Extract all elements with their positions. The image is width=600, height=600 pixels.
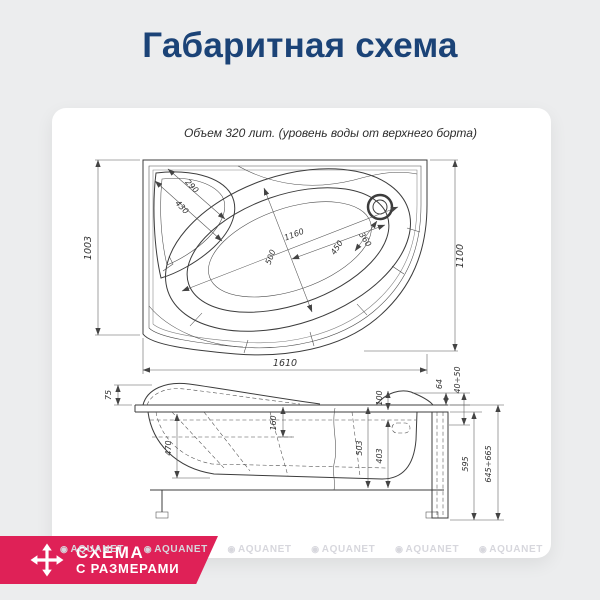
dim-label-403: 403 [375,448,384,463]
apron-hidden [437,412,443,518]
ext-lines-1100 [364,160,458,351]
dim-label-595: 595 [461,456,470,471]
dim-label-1100: 1100 [455,244,466,268]
page-title: Габаритная схема [0,26,600,66]
apron-panel [432,412,448,518]
bowl-outline [148,412,417,479]
dim-label-64: 64 [435,379,444,389]
dim-label-1160: 1160 [283,227,305,243]
dim-label-160: 160 [269,415,278,430]
badge-line2: С РАЗМЕРАМИ [76,562,179,577]
bowl-hidden-diagonals [172,412,360,476]
dim-label-430: 430 [173,199,190,216]
dim-label-645-665: 645÷665 [484,445,493,482]
move-arrows-icon [30,543,64,577]
dim-label-1003: 1003 [83,236,94,260]
dim-label-40-50: 40÷50 [453,366,462,393]
ext-lines-75 [114,385,152,405]
dim-label-500: 500 [264,248,278,265]
rim-band [135,405,448,412]
tub-outer-shell [143,160,427,355]
dim-line-1160 [182,207,398,291]
pump-detail [392,423,410,433]
foot-left [156,512,168,518]
rim-spokes [190,228,420,353]
top-view: 1003 1100 1610 290 430 1160 500 450 360 [83,139,466,374]
dim-label-503: 503 [355,440,364,455]
dim-label-290: 290 [183,178,200,195]
dim-label-450: 450 [329,239,345,257]
headrest-hump [143,383,320,405]
side-view: 75 470 160 503 403 100 64 40÷50 [104,366,504,520]
badge-line1: СХЕМА [76,543,179,563]
technical-drawing: .ln{fill:none;stroke:#3c3c3c;stroke-widt… [52,108,551,558]
seat-fold [163,256,173,271]
ext-lines-595 [450,412,504,520]
ext-lines-1003 [95,160,140,335]
dim-line-290 [168,169,225,219]
dim-label-100: 100 [375,390,384,405]
dim-label-75: 75 [104,390,113,400]
dim-label-1610: 1610 [273,358,297,369]
drawing-card: Объем 320 лит. (уровень воды от верхнего… [52,108,551,558]
headrest-hump-hidden [147,389,300,405]
dim-label-470: 470 [164,440,173,455]
ext-lines-64 [412,393,470,405]
drain [368,195,392,219]
frame-legs [162,490,432,512]
dimensions-badge: СХЕМА С РАЗМЕРАМИ [0,536,218,584]
dim-label-360: 360 [357,231,373,249]
